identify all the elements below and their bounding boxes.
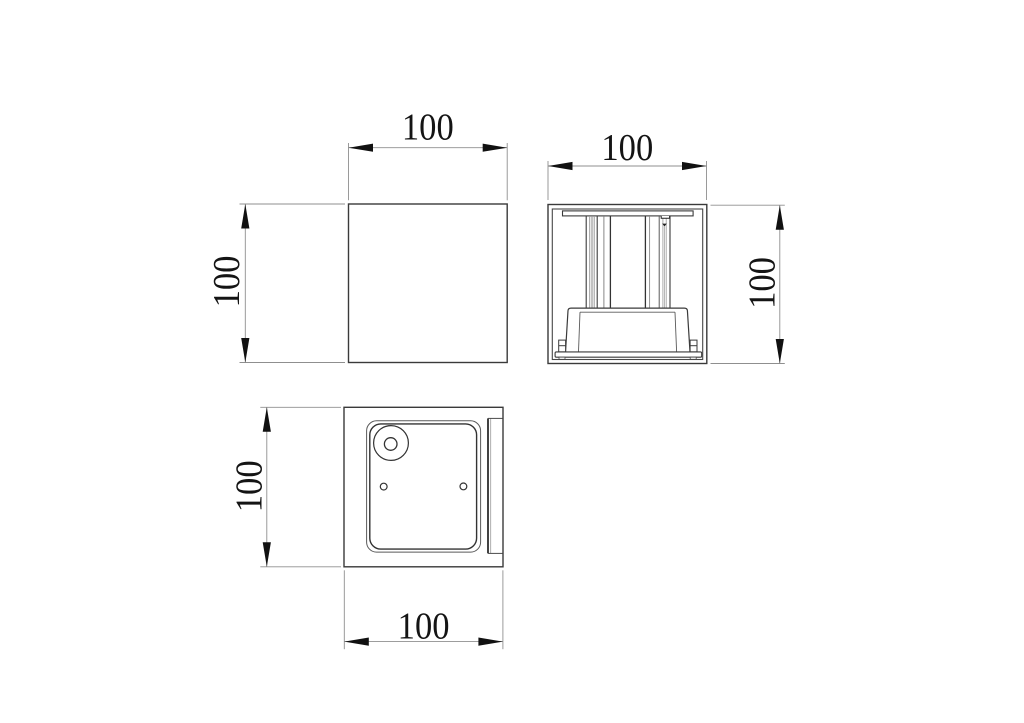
svg-text:100: 100 bbox=[601, 127, 653, 169]
svg-text:100: 100 bbox=[398, 605, 450, 647]
svg-text:100: 100 bbox=[402, 106, 454, 148]
svg-text:100: 100 bbox=[228, 460, 270, 512]
svg-text:100: 100 bbox=[206, 256, 248, 308]
svg-text:100: 100 bbox=[741, 257, 783, 309]
